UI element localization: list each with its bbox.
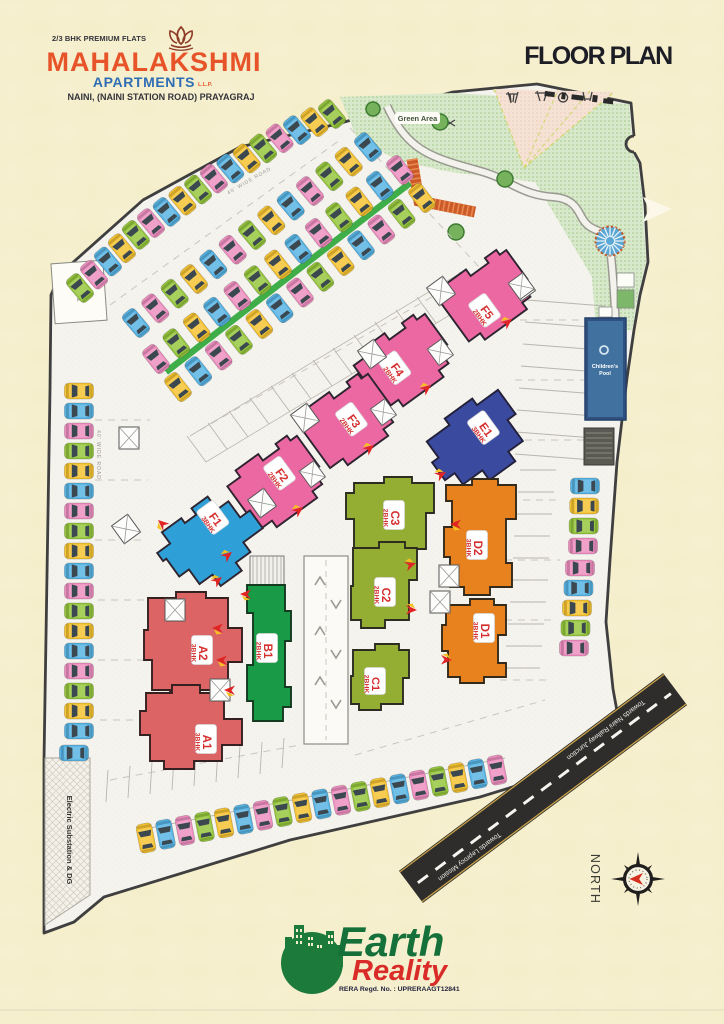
- svg-text:40' WIDE ROAD: 40' WIDE ROAD: [95, 430, 101, 480]
- svg-text:NAINI, (NAINI STATION ROAD) PR: NAINI, (NAINI STATION ROAD) PRAYAGRAJ: [67, 92, 254, 102]
- svg-text:Green Area: Green Area: [398, 114, 438, 123]
- svg-text:RERA Regd. No. : UPRERAAGT1284: RERA Regd. No. : UPRERAAGT12841: [339, 986, 460, 993]
- svg-text:APARTMENTS: APARTMENTS: [93, 74, 195, 90]
- svg-text:2/3 BHK PREMIUM FLATS: 2/3 BHK PREMIUM FLATS: [52, 34, 146, 43]
- svg-text:D2: D2: [471, 541, 483, 556]
- svg-text:C2: C2: [379, 588, 391, 603]
- svg-text:2BHK: 2BHK: [255, 642, 262, 661]
- svg-text:3BHK: 3BHK: [190, 644, 197, 663]
- svg-text:MAHALAKSHMI: MAHALAKSHMI: [47, 47, 262, 77]
- svg-text:3BHK: 3BHK: [194, 733, 201, 752]
- svg-text:A2: A2: [196, 646, 208, 661]
- svg-text:2BHK: 2BHK: [363, 675, 370, 694]
- svg-text:C3: C3: [388, 511, 400, 526]
- svg-text:FLOOR PLAN: FLOOR PLAN: [524, 42, 672, 70]
- svg-text:Electric Substation & DG: Electric Substation & DG: [65, 796, 74, 885]
- svg-text:2BHK: 2BHK: [382, 509, 389, 528]
- svg-text:3BHK: 3BHK: [472, 622, 479, 641]
- svg-text:Pool: Pool: [599, 371, 611, 377]
- svg-text:D1: D1: [478, 624, 490, 639]
- svg-text:C1: C1: [369, 677, 381, 691]
- svg-text:NORTH: NORTH: [588, 854, 602, 904]
- svg-text:L.L.P.: L.L.P.: [198, 82, 213, 88]
- svg-text:Children's: Children's: [592, 364, 618, 370]
- svg-text:A1: A1: [200, 735, 212, 750]
- svg-text:Reality: Reality: [352, 955, 449, 987]
- svg-text:3BHK: 3BHK: [465, 539, 472, 558]
- svg-text:B1: B1: [261, 644, 273, 659]
- svg-text:2BHK: 2BHK: [373, 586, 380, 605]
